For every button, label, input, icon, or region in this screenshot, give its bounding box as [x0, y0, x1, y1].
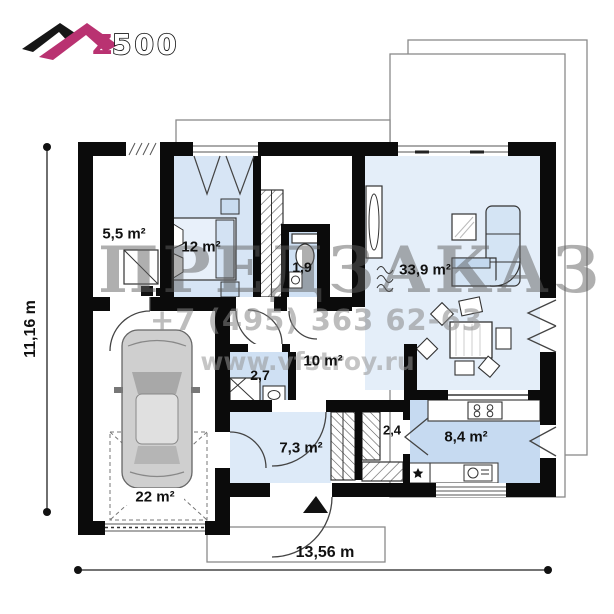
logo-z-text: Z — [92, 28, 112, 61]
wall-kitchen-top-right — [528, 390, 556, 400]
room-label-kitchen: 8,4 m² — [444, 429, 487, 446]
room-label-technical-room: 5,5 m² — [102, 226, 145, 243]
watermark-phone: +7 (495) 363 62-63 — [150, 303, 480, 337]
dim-label-width: 13,56 m — [296, 544, 355, 562]
wall-kitchen-top-left — [404, 390, 448, 400]
room-label-bathroom: 2,7 — [250, 367, 269, 383]
room-label-living-room: 33,9 m² — [399, 262, 451, 279]
room-label-garage: 22 m² — [135, 489, 174, 506]
living-room-window — [398, 142, 508, 156]
car-icon — [114, 330, 200, 488]
car-mirror-icon — [191, 387, 200, 393]
kitchen-bottom-steps — [436, 483, 506, 497]
room-label-bedroom: 12 m² — [181, 239, 220, 256]
dim-label-height: 11,16 m — [22, 300, 40, 358]
wall-wc-top — [281, 224, 330, 232]
nightstand — [221, 199, 239, 214]
floor-plan-page: Z 500 — [0, 0, 614, 614]
stove-icon — [468, 402, 502, 419]
car-mirror-icon — [114, 387, 123, 393]
vent-window — [126, 142, 160, 156]
entrance-arrow-icon — [303, 496, 328, 513]
logo-500-text: 500 — [112, 28, 179, 61]
chair — [455, 361, 474, 375]
room-label-hall: 7,3 m² — [279, 440, 322, 457]
room-label-wc: 1,9 — [292, 259, 311, 275]
watermark-big-text: ПРЕДЗАКАЗ — [98, 233, 603, 308]
chair — [496, 328, 511, 349]
garage-gate — [105, 521, 205, 535]
room-label-corridor: 10 m² — [303, 353, 342, 370]
wall-closet-left — [355, 412, 362, 480]
room-label-closet: 2,4 — [383, 423, 401, 438]
wall-left — [78, 142, 93, 535]
z500-logo: Z 500 — [8, 4, 193, 66]
